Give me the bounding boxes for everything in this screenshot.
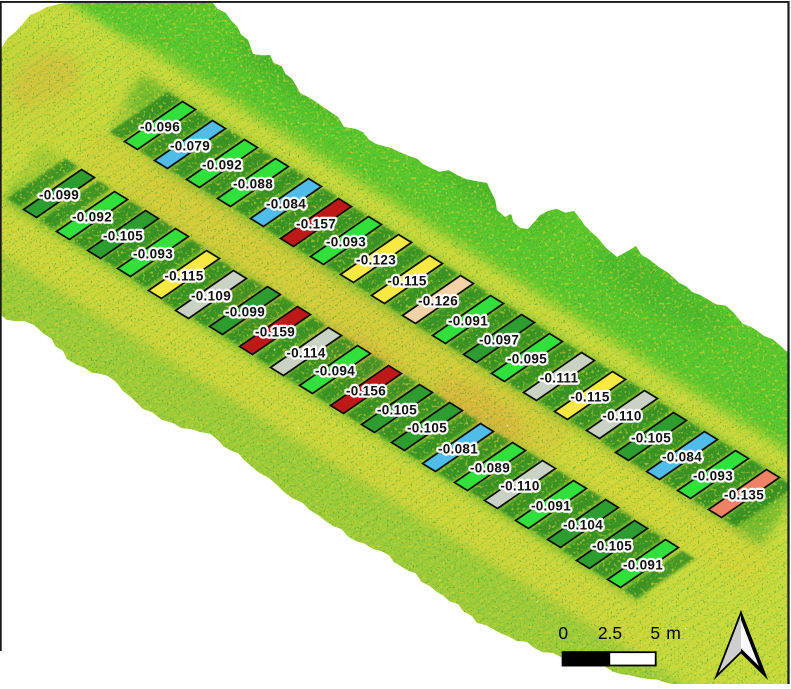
svg-text:0: 0 [558, 623, 568, 643]
svg-text:5: 5 [650, 623, 660, 643]
svg-text:-0.115: -0.115 [387, 274, 427, 289]
svg-text:-0.105: -0.105 [103, 229, 143, 244]
svg-text:-0.081: -0.081 [438, 442, 478, 457]
svg-text:-0.111: -0.111 [540, 371, 579, 386]
svg-text:2.5: 2.5 [598, 623, 622, 643]
svg-text:-0.093: -0.093 [326, 235, 366, 250]
svg-text:-0.092: -0.092 [72, 210, 112, 225]
svg-text:-0.093: -0.093 [133, 247, 173, 262]
svg-text:-0.099: -0.099 [225, 305, 265, 320]
svg-text:-0.105: -0.105 [407, 421, 447, 436]
svg-text:-0.104: -0.104 [563, 518, 603, 533]
svg-text:-0.109: -0.109 [191, 289, 231, 304]
svg-text:-0.105: -0.105 [377, 403, 417, 418]
svg-text:-0.156: -0.156 [346, 384, 386, 399]
svg-text:-0.088: -0.088 [233, 177, 273, 192]
svg-text:-0.135: -0.135 [724, 488, 764, 503]
svg-text:-0.094: -0.094 [315, 364, 355, 379]
svg-text:-0.105: -0.105 [631, 431, 671, 446]
svg-text:-0.091: -0.091 [448, 314, 488, 329]
svg-text:m: m [666, 623, 681, 643]
svg-text:-0.092: -0.092 [202, 158, 242, 173]
svg-text:-0.091: -0.091 [531, 499, 571, 514]
svg-text:-0.097: -0.097 [479, 333, 519, 348]
svg-text:-0.105: -0.105 [592, 539, 632, 554]
svg-text:-0.126: -0.126 [418, 294, 458, 309]
svg-text:-0.079: -0.079 [170, 139, 210, 154]
svg-text:-0.089: -0.089 [470, 461, 510, 476]
svg-text:-0.123: -0.123 [356, 253, 396, 268]
svg-text:-0.115: -0.115 [570, 390, 610, 405]
svg-text:-0.110: -0.110 [602, 409, 641, 424]
svg-text:-0.096: -0.096 [140, 120, 180, 135]
svg-text:-0.114: -0.114 [286, 346, 326, 361]
svg-text:-0.095: -0.095 [507, 352, 547, 367]
svg-text:-0.115: -0.115 [164, 269, 204, 284]
svg-text:-0.099: -0.099 [39, 188, 79, 203]
svg-text:-0.084: -0.084 [266, 197, 306, 212]
svg-text:-0.093: -0.093 [693, 469, 733, 484]
svg-text:-0.091: -0.091 [623, 558, 663, 573]
svg-text:-0.157: -0.157 [296, 217, 336, 232]
svg-text:-0.110: -0.110 [500, 479, 539, 494]
svg-text:-0.084: -0.084 [662, 450, 702, 465]
svg-text:-0.159: -0.159 [255, 325, 295, 340]
